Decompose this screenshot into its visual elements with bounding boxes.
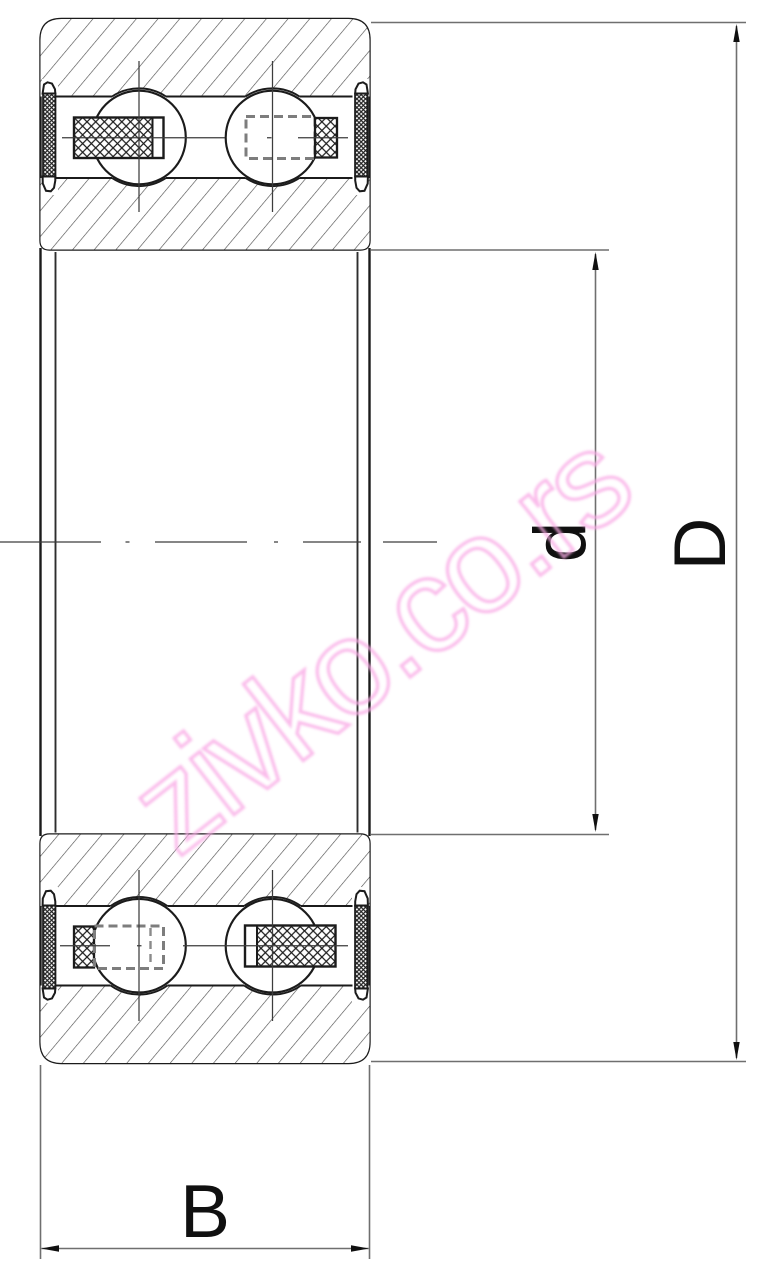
svg-text:B: B <box>180 1169 230 1253</box>
svg-text:D: D <box>660 518 741 571</box>
svg-text:zivko.co.rs: zivko.co.rs <box>104 405 656 882</box>
